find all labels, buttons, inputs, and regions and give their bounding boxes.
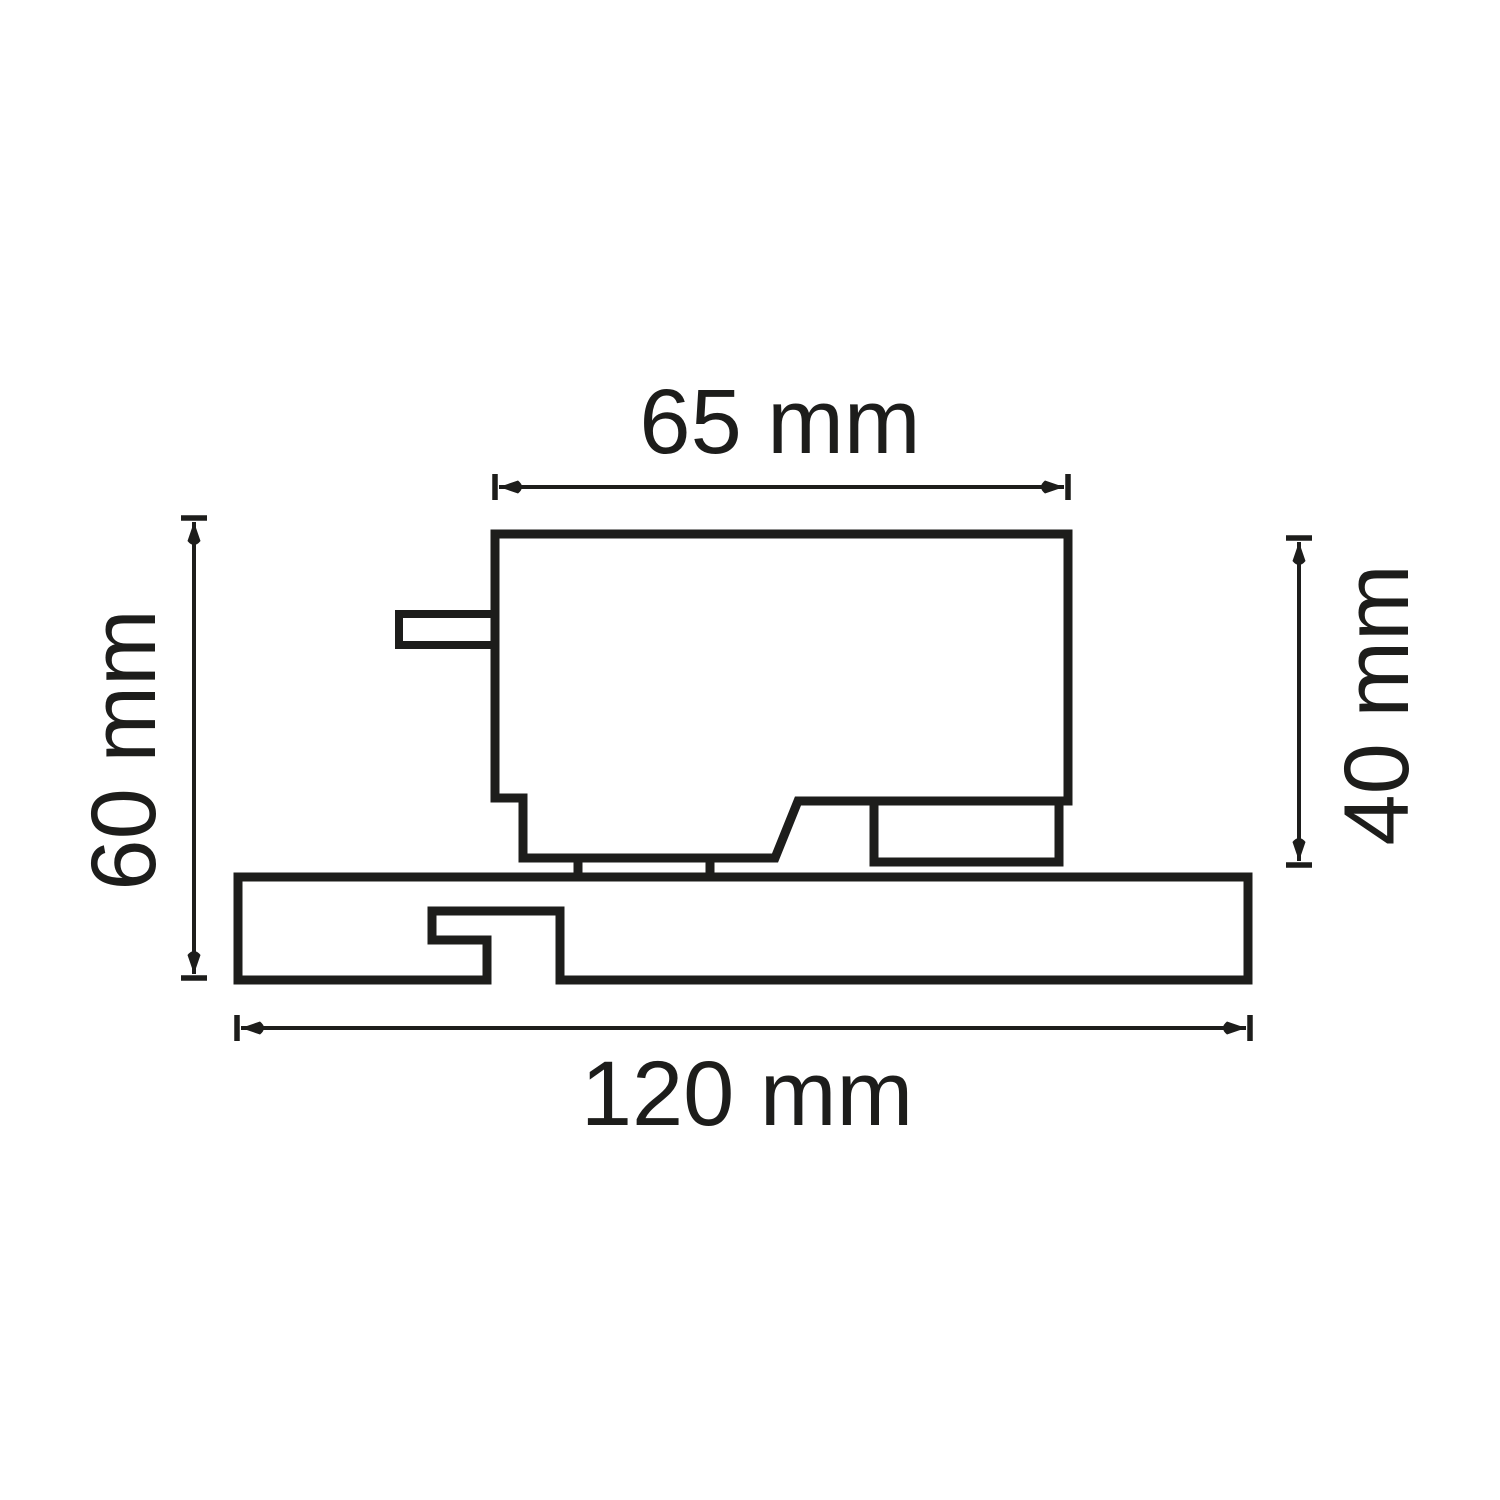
- drawing-background: [0, 0, 1500, 1500]
- dimension-label-left: 60 mm: [73, 609, 175, 890]
- dimension-label-top: 65 mm: [639, 371, 920, 473]
- dimension-label-bottom: 120 mm: [581, 1043, 913, 1145]
- technical-drawing: 65 mm 120 mm 60 mm 40 mm: [0, 0, 1500, 1500]
- drawing-canvas: 65 mm 120 mm 60 mm 40 mm: [0, 0, 1500, 1500]
- dimension-label-right: 40 mm: [1326, 564, 1428, 845]
